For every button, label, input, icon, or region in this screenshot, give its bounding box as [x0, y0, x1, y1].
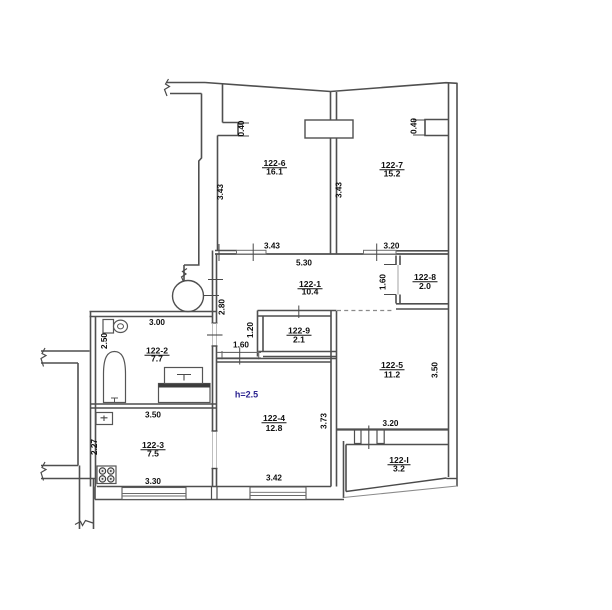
- svg-text:5.30: 5.30: [296, 259, 312, 268]
- svg-text:1.60: 1.60: [233, 341, 249, 350]
- svg-text:1.60: 1.60: [379, 274, 388, 290]
- svg-text:3.2: 3.2: [393, 464, 405, 474]
- svg-text:3.42: 3.42: [266, 474, 282, 483]
- svg-text:122-5: 122-5: [381, 360, 403, 370]
- svg-text:11.2: 11.2: [384, 370, 400, 380]
- svg-text:3.20: 3.20: [383, 419, 399, 428]
- svg-text:7.7: 7.7: [151, 354, 163, 364]
- svg-text:3.43: 3.43: [335, 182, 344, 198]
- svg-text:10.4: 10.4: [302, 287, 319, 297]
- svg-text:0.40: 0.40: [237, 120, 246, 136]
- svg-text:3.30: 3.30: [145, 477, 161, 486]
- svg-text:122-4: 122-4: [263, 413, 285, 423]
- svg-text:15.2: 15.2: [384, 169, 401, 179]
- svg-text:3.20: 3.20: [384, 242, 400, 251]
- svg-text:2.1: 2.1: [293, 335, 305, 345]
- svg-text:3.50: 3.50: [145, 411, 161, 420]
- svg-text:h=2.5: h=2.5: [235, 390, 258, 400]
- svg-text:3.43: 3.43: [216, 184, 225, 200]
- svg-text:0.40: 0.40: [410, 118, 419, 134]
- svg-text:12.8: 12.8: [266, 423, 283, 433]
- svg-text:2.0: 2.0: [419, 281, 431, 291]
- svg-text:2.80: 2.80: [218, 299, 227, 315]
- svg-text:3.50: 3.50: [431, 362, 440, 378]
- svg-text:3.43: 3.43: [264, 242, 280, 251]
- svg-text:2.50: 2.50: [100, 333, 109, 349]
- svg-text:3.00: 3.00: [149, 318, 165, 327]
- svg-text:16.1: 16.1: [266, 167, 283, 177]
- svg-text:2.27: 2.27: [90, 439, 99, 455]
- svg-text:7.5: 7.5: [147, 449, 159, 459]
- svg-text:3.73: 3.73: [320, 413, 329, 429]
- svg-text:1.20: 1.20: [246, 322, 255, 338]
